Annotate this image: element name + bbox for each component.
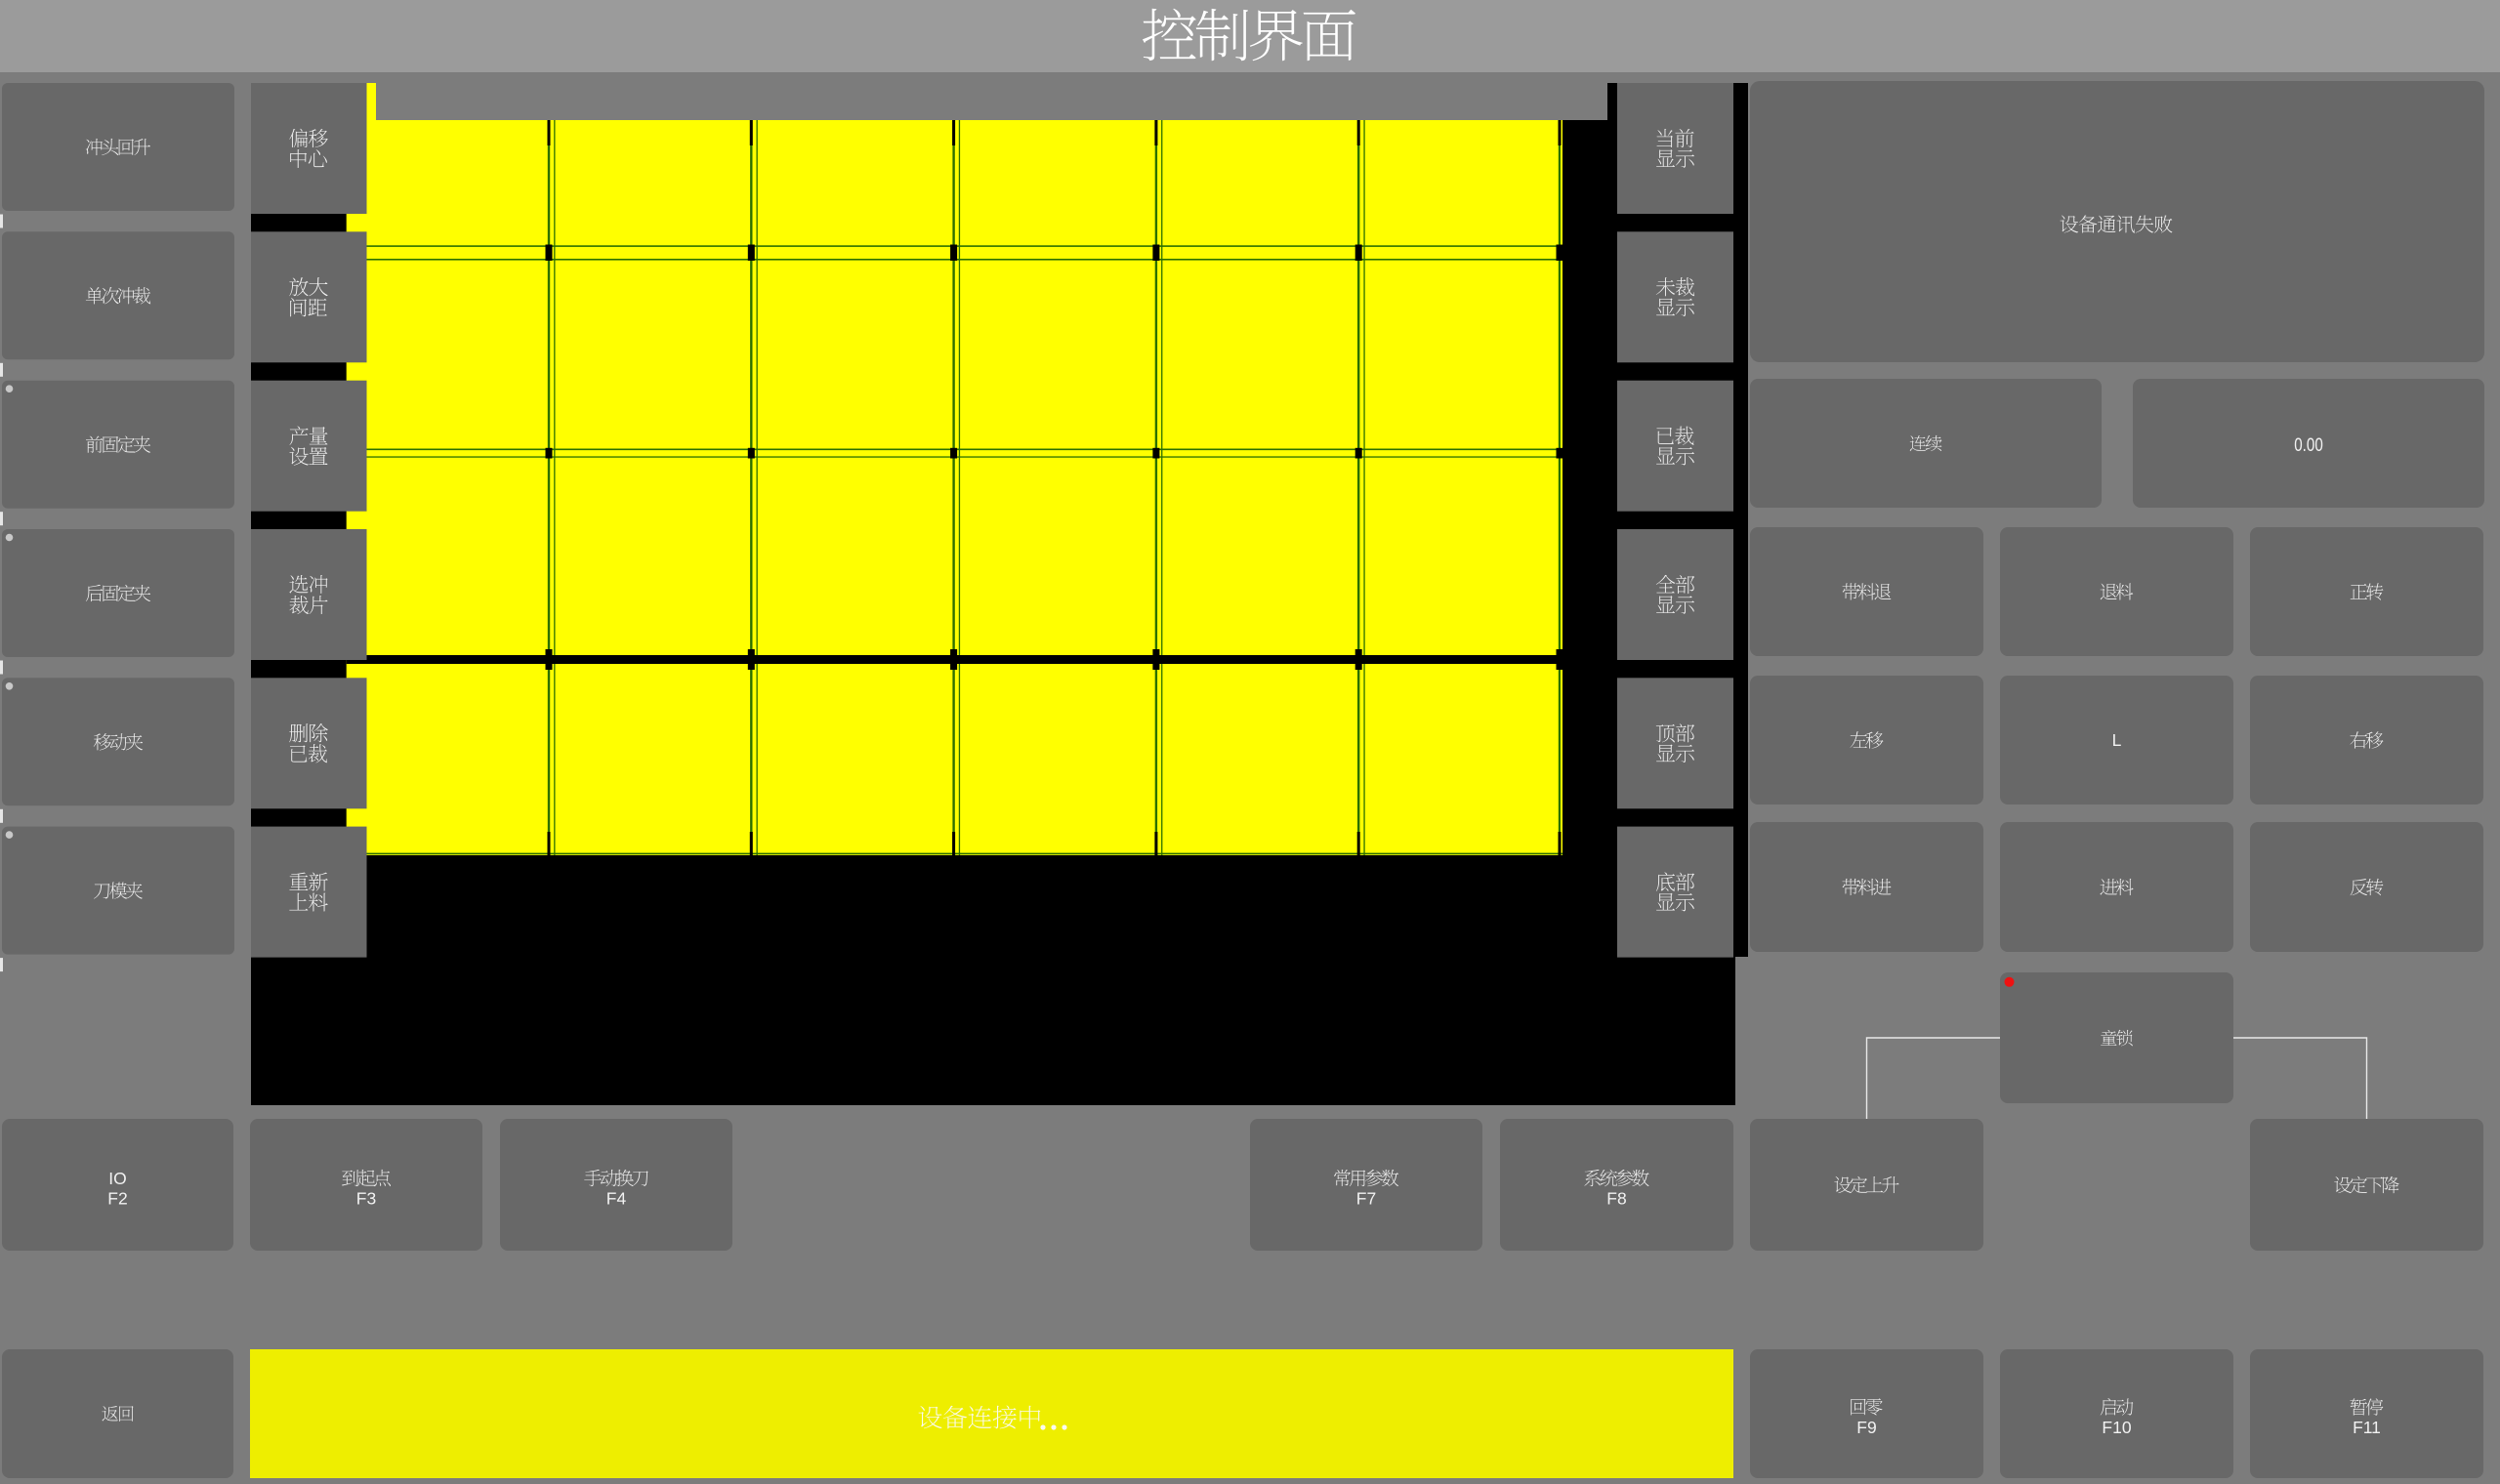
svg-text:F9: F9	[1856, 1418, 1876, 1437]
svg-text:L: L	[2112, 730, 2122, 750]
svg-text:F8: F8	[1606, 1189, 1626, 1209]
svg-text:F11: F11	[2353, 1418, 2381, 1437]
svg-text:IO: IO	[108, 1169, 126, 1188]
svg-text:F7: F7	[1356, 1189, 1376, 1209]
svg-text:F3: F3	[356, 1189, 376, 1209]
svg-text:F4: F4	[606, 1189, 627, 1209]
svg-text:0.00: 0.00	[2294, 435, 2323, 456]
svg-text:F10: F10	[2102, 1418, 2131, 1437]
svg-text:F2: F2	[107, 1189, 127, 1209]
